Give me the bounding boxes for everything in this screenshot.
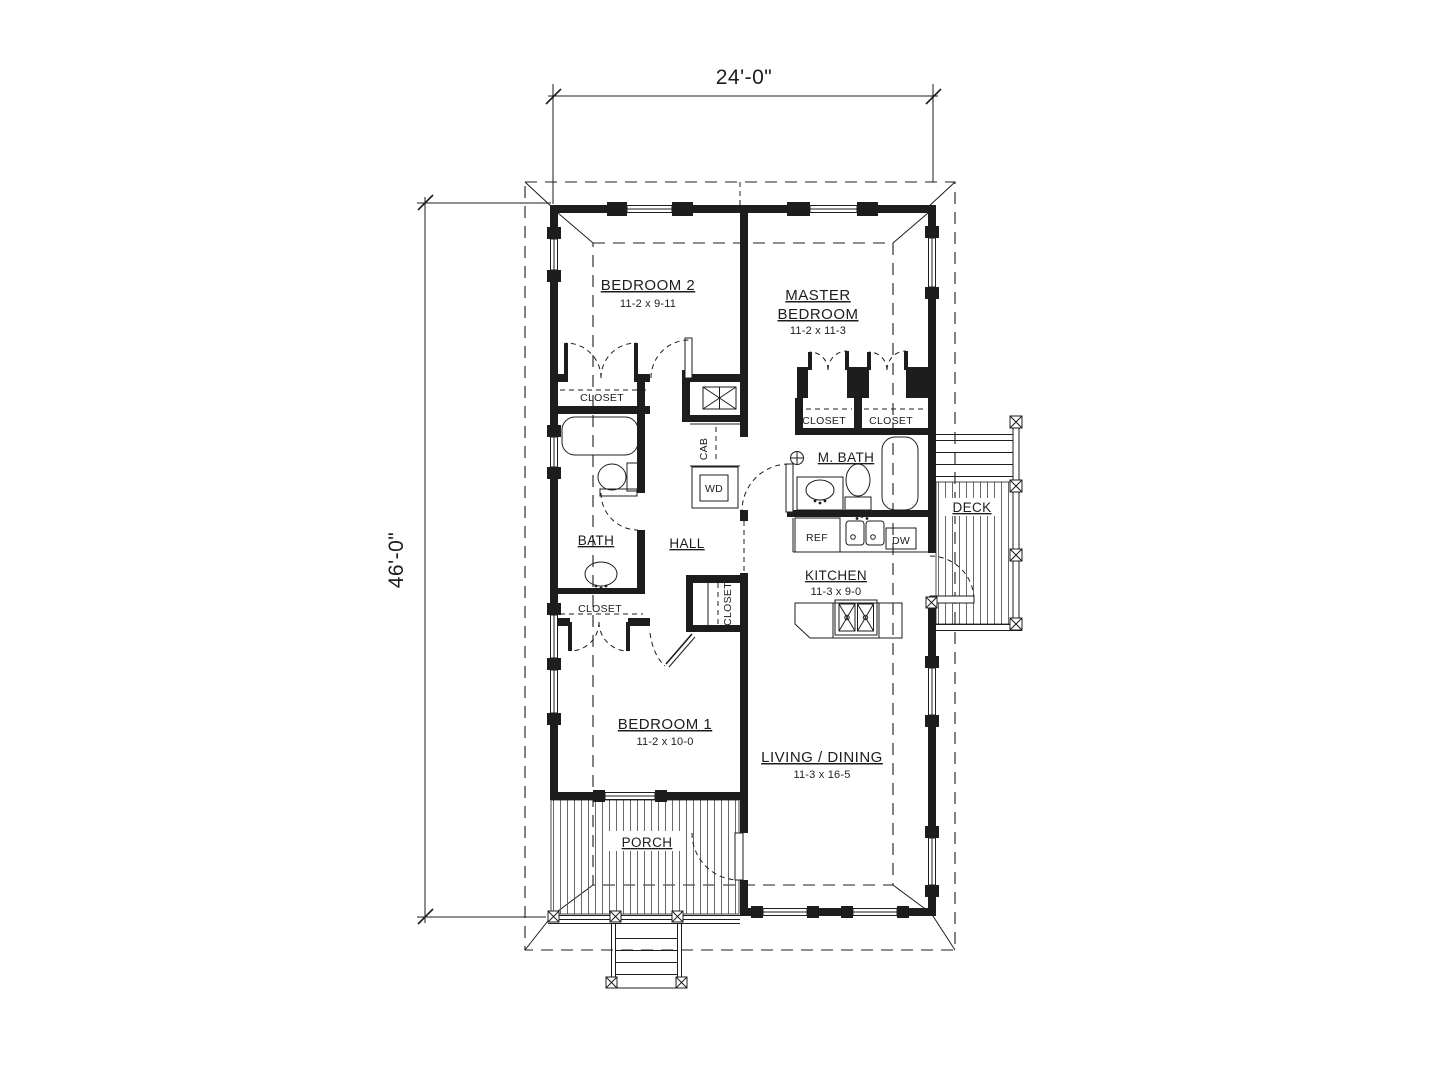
kitchen-sink-icon	[846, 515, 884, 545]
ceiling-fixture-icon	[791, 452, 804, 465]
deck-post-icon	[1010, 618, 1022, 630]
deck-post-icon	[926, 597, 937, 608]
deck-post-icon	[1010, 480, 1022, 492]
room-label-hall: HALL	[669, 536, 704, 551]
room-size-master: 11-2 x 11-3	[790, 325, 846, 337]
room-label-master-bath: M. BATH	[818, 450, 875, 465]
room-label-bath: BATH	[578, 533, 615, 548]
floor-plan-drawing: 24'-0" 46'-0" BEDROOM 2 11-2 x 9-11 MAST…	[0, 0, 1445, 1084]
vanity-icon	[797, 477, 843, 510]
porch-post-icon	[610, 911, 621, 922]
master-bath-fixtures	[791, 437, 919, 510]
closet-label: CLOSET	[869, 415, 913, 427]
room-size-living-dining: 11-3 x 16-5	[793, 769, 850, 781]
sink-icon	[585, 562, 617, 586]
shelf-icon	[703, 387, 736, 409]
room-label-porch: PORCH	[622, 835, 673, 850]
bath-fixtures	[562, 417, 640, 589]
room-label-kitchen: KITCHEN	[805, 568, 867, 583]
room-label-deck: DECK	[952, 500, 991, 515]
range-icon	[835, 600, 877, 635]
room-label-bedroom1: BEDROOM 1	[618, 716, 713, 733]
sink-icon	[806, 480, 834, 500]
porch-decking	[551, 800, 739, 914]
room-size-bedroom2: 11-2 x 9-11	[620, 298, 676, 310]
toilet-icon	[846, 464, 870, 496]
tub-icon	[882, 437, 918, 510]
room-size-bedroom1: 11-2 x 10-0	[636, 736, 693, 748]
closet-label: CLOSET	[802, 415, 846, 427]
cabinet-label: CAB	[698, 438, 710, 461]
porch-post-icon	[672, 911, 683, 922]
closet-label: CLOSET	[580, 392, 624, 404]
floor-plan-sheet: 24'-0" 46'-0" BEDROOM 2 11-2 x 9-11 MAST…	[0, 0, 1445, 1084]
step-post-icon	[676, 977, 687, 988]
refrigerator-label: REF	[806, 532, 828, 544]
dimension-left: 46'-0"	[385, 195, 551, 924]
tub-icon	[562, 417, 638, 455]
step-post-icon	[606, 977, 617, 988]
toilet-icon	[598, 464, 626, 490]
deck-post-icon	[1010, 549, 1022, 561]
room-label-master-line1: MASTER	[785, 287, 851, 304]
closet-label-vertical: CLOSET	[722, 582, 734, 626]
closet-label: CLOSET	[578, 603, 622, 615]
room-label-master-line2: BEDROOM	[777, 306, 858, 323]
dishwasher-label: DW	[892, 535, 910, 547]
dimension-top: 24'-0"	[546, 66, 941, 204]
porch-post-icon	[548, 911, 559, 922]
deck-post-icon	[1010, 416, 1022, 428]
room-size-kitchen: 11-3 x 9-0	[811, 586, 862, 598]
dimension-depth-label: 46'-0"	[385, 532, 408, 589]
washer-dryer-label: WD	[705, 483, 723, 495]
dimension-width-label: 24'-0"	[716, 66, 773, 89]
room-label-bedroom2: BEDROOM 2	[601, 277, 696, 294]
room-label-living-dining: LIVING / DINING	[761, 749, 883, 766]
